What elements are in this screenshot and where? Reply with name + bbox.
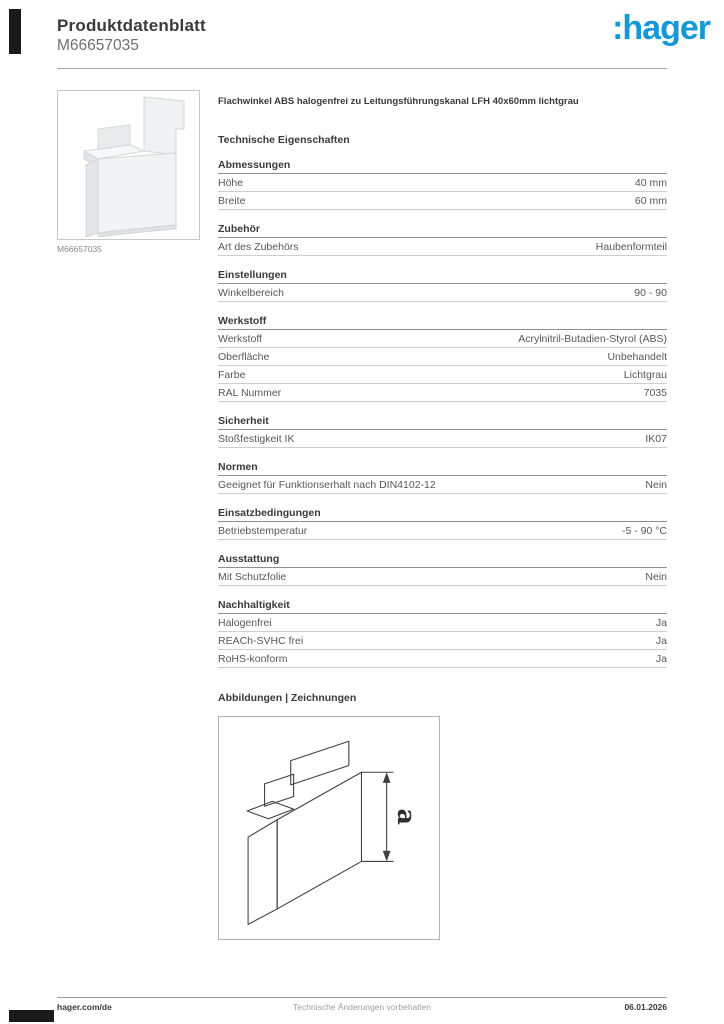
spec-label: RAL Nummer	[218, 387, 281, 399]
tech-properties-heading: Technische Eigenschaften	[218, 134, 667, 146]
spec-label: Mit Schutzfolie	[218, 571, 286, 583]
spec-row: Mit SchutzfolieNein	[218, 568, 667, 586]
spec-value: Acrylnitril-Butadien-Styrol (ABS)	[518, 333, 667, 345]
spec-value: -5 - 90 °C	[622, 525, 667, 537]
spec-value: Ja	[656, 635, 667, 647]
spec-label: RoHS-konform	[218, 653, 287, 665]
spec-value: 90 - 90	[634, 287, 667, 299]
spec-label: Stoßfestigkeit IK	[218, 433, 294, 445]
spec-section-title: Werkstoff	[218, 312, 667, 330]
spec-section: NormenGeeignet für Funktionserhalt nach …	[218, 458, 667, 494]
spec-value: Ja	[656, 617, 667, 629]
product-photo-caption: M66657035	[57, 244, 102, 254]
spec-section-title: Einstellungen	[218, 266, 667, 284]
spec-row: FarbeLichtgrau	[218, 366, 667, 384]
spec-row: OberflächeUnbehandelt	[218, 348, 667, 366]
footer-divider	[57, 997, 667, 998]
spec-row: Höhe40 mm	[218, 174, 667, 192]
header: Produktdatenblatt M66657035	[57, 16, 667, 55]
spec-section-title: Normen	[218, 458, 667, 476]
spec-section-title: Zubehör	[218, 220, 667, 238]
corner-trunking-piece-image	[58, 91, 197, 237]
spec-row: Stoßfestigkeit IKIK07	[218, 430, 667, 448]
spec-label: Farbe	[218, 369, 245, 381]
spec-section: EinsatzbedingungenBetriebstemperatur-5 -…	[218, 504, 667, 540]
spec-label: Geeignet für Funktionserhalt nach DIN410…	[218, 479, 436, 491]
page-title: Produktdatenblatt	[57, 16, 667, 36]
product-description: Flachwinkel ABS halogenfrei zu Leitungsf…	[218, 90, 667, 108]
page-fold-mark-top	[9, 9, 21, 54]
spec-section: AbmessungenHöhe40 mmBreite60 mm	[218, 156, 667, 210]
spec-row: REACh-SVHC freiJa	[218, 632, 667, 650]
spec-sections: AbmessungenHöhe40 mmBreite60 mmZubehörAr…	[218, 156, 667, 668]
spec-section-title: Nachhaltigkeit	[218, 596, 667, 614]
dimension-label-a: a	[392, 809, 422, 825]
product-id: M66657035	[57, 36, 667, 55]
spec-value: Haubenformteil	[596, 241, 667, 253]
spec-row: Breite60 mm	[218, 192, 667, 210]
spec-value: Lichtgrau	[624, 369, 667, 381]
spec-label: Winkelbereich	[218, 287, 284, 299]
spec-section: ZubehörArt des ZubehörsHaubenformteil	[218, 220, 667, 256]
spec-value: Unbehandelt	[607, 351, 667, 363]
spec-label: Werkstoff	[218, 333, 262, 345]
spec-value: 40 mm	[635, 177, 667, 189]
spec-section-title: Einsatzbedingungen	[218, 504, 667, 522]
product-photo	[57, 90, 200, 240]
spec-value: Nein	[645, 479, 667, 491]
spec-section: WerkstoffWerkstoffAcrylnitril-Butadien-S…	[218, 312, 667, 402]
spec-row: RAL Nummer7035	[218, 384, 667, 402]
spec-section-title: Ausstattung	[218, 550, 667, 568]
drawings-heading: Abbildungen | Zeichnungen	[218, 692, 667, 704]
spec-section-title: Abmessungen	[218, 156, 667, 174]
spec-row: HalogenfreiJa	[218, 614, 667, 632]
spec-value: 7035	[644, 387, 667, 399]
spec-label: Halogenfrei	[218, 617, 272, 629]
spec-row: WerkstoffAcrylnitril-Butadien-Styrol (AB…	[218, 330, 667, 348]
main-content: Flachwinkel ABS halogenfrei zu Leitungsf…	[218, 90, 667, 940]
spec-section-title: Sicherheit	[218, 412, 667, 430]
spec-row: Art des ZubehörsHaubenformteil	[218, 238, 667, 256]
spec-row: Winkelbereich90 - 90	[218, 284, 667, 302]
spec-section: AusstattungMit SchutzfolieNein	[218, 550, 667, 586]
spec-label: Breite	[218, 195, 245, 207]
spec-value: IK07	[645, 433, 667, 445]
spec-value: Nein	[645, 571, 667, 583]
flat-angle-drawing: a	[219, 717, 439, 939]
spec-row: Betriebstemperatur-5 - 90 °C	[218, 522, 667, 540]
spec-value: Ja	[656, 653, 667, 665]
spec-row: RoHS-konformJa	[218, 650, 667, 668]
hager-logo: :hager	[612, 10, 710, 46]
header-divider	[57, 68, 667, 69]
spec-label: Oberfläche	[218, 351, 269, 363]
spec-section: SicherheitStoßfestigkeit IKIK07	[218, 412, 667, 448]
spec-row: Geeignet für Funktionserhalt nach DIN410…	[218, 476, 667, 494]
spec-section: EinstellungenWinkelbereich90 - 90	[218, 266, 667, 302]
spec-label: Betriebstemperatur	[218, 525, 307, 537]
technical-drawing: a	[218, 716, 440, 940]
spec-label: Höhe	[218, 177, 243, 189]
spec-label: REACh-SVHC frei	[218, 635, 303, 647]
footer-notice: Technische Änderungen vorbehalten	[0, 1002, 724, 1012]
spec-label: Art des Zubehörs	[218, 241, 299, 253]
spec-section: NachhaltigkeitHalogenfreiJaREACh-SVHC fr…	[218, 596, 667, 668]
spec-value: 60 mm	[635, 195, 667, 207]
footer-date: 06.01.2026	[624, 1002, 667, 1012]
datasheet-page: Produktdatenblatt M66657035 :hager M6665…	[0, 0, 724, 1024]
